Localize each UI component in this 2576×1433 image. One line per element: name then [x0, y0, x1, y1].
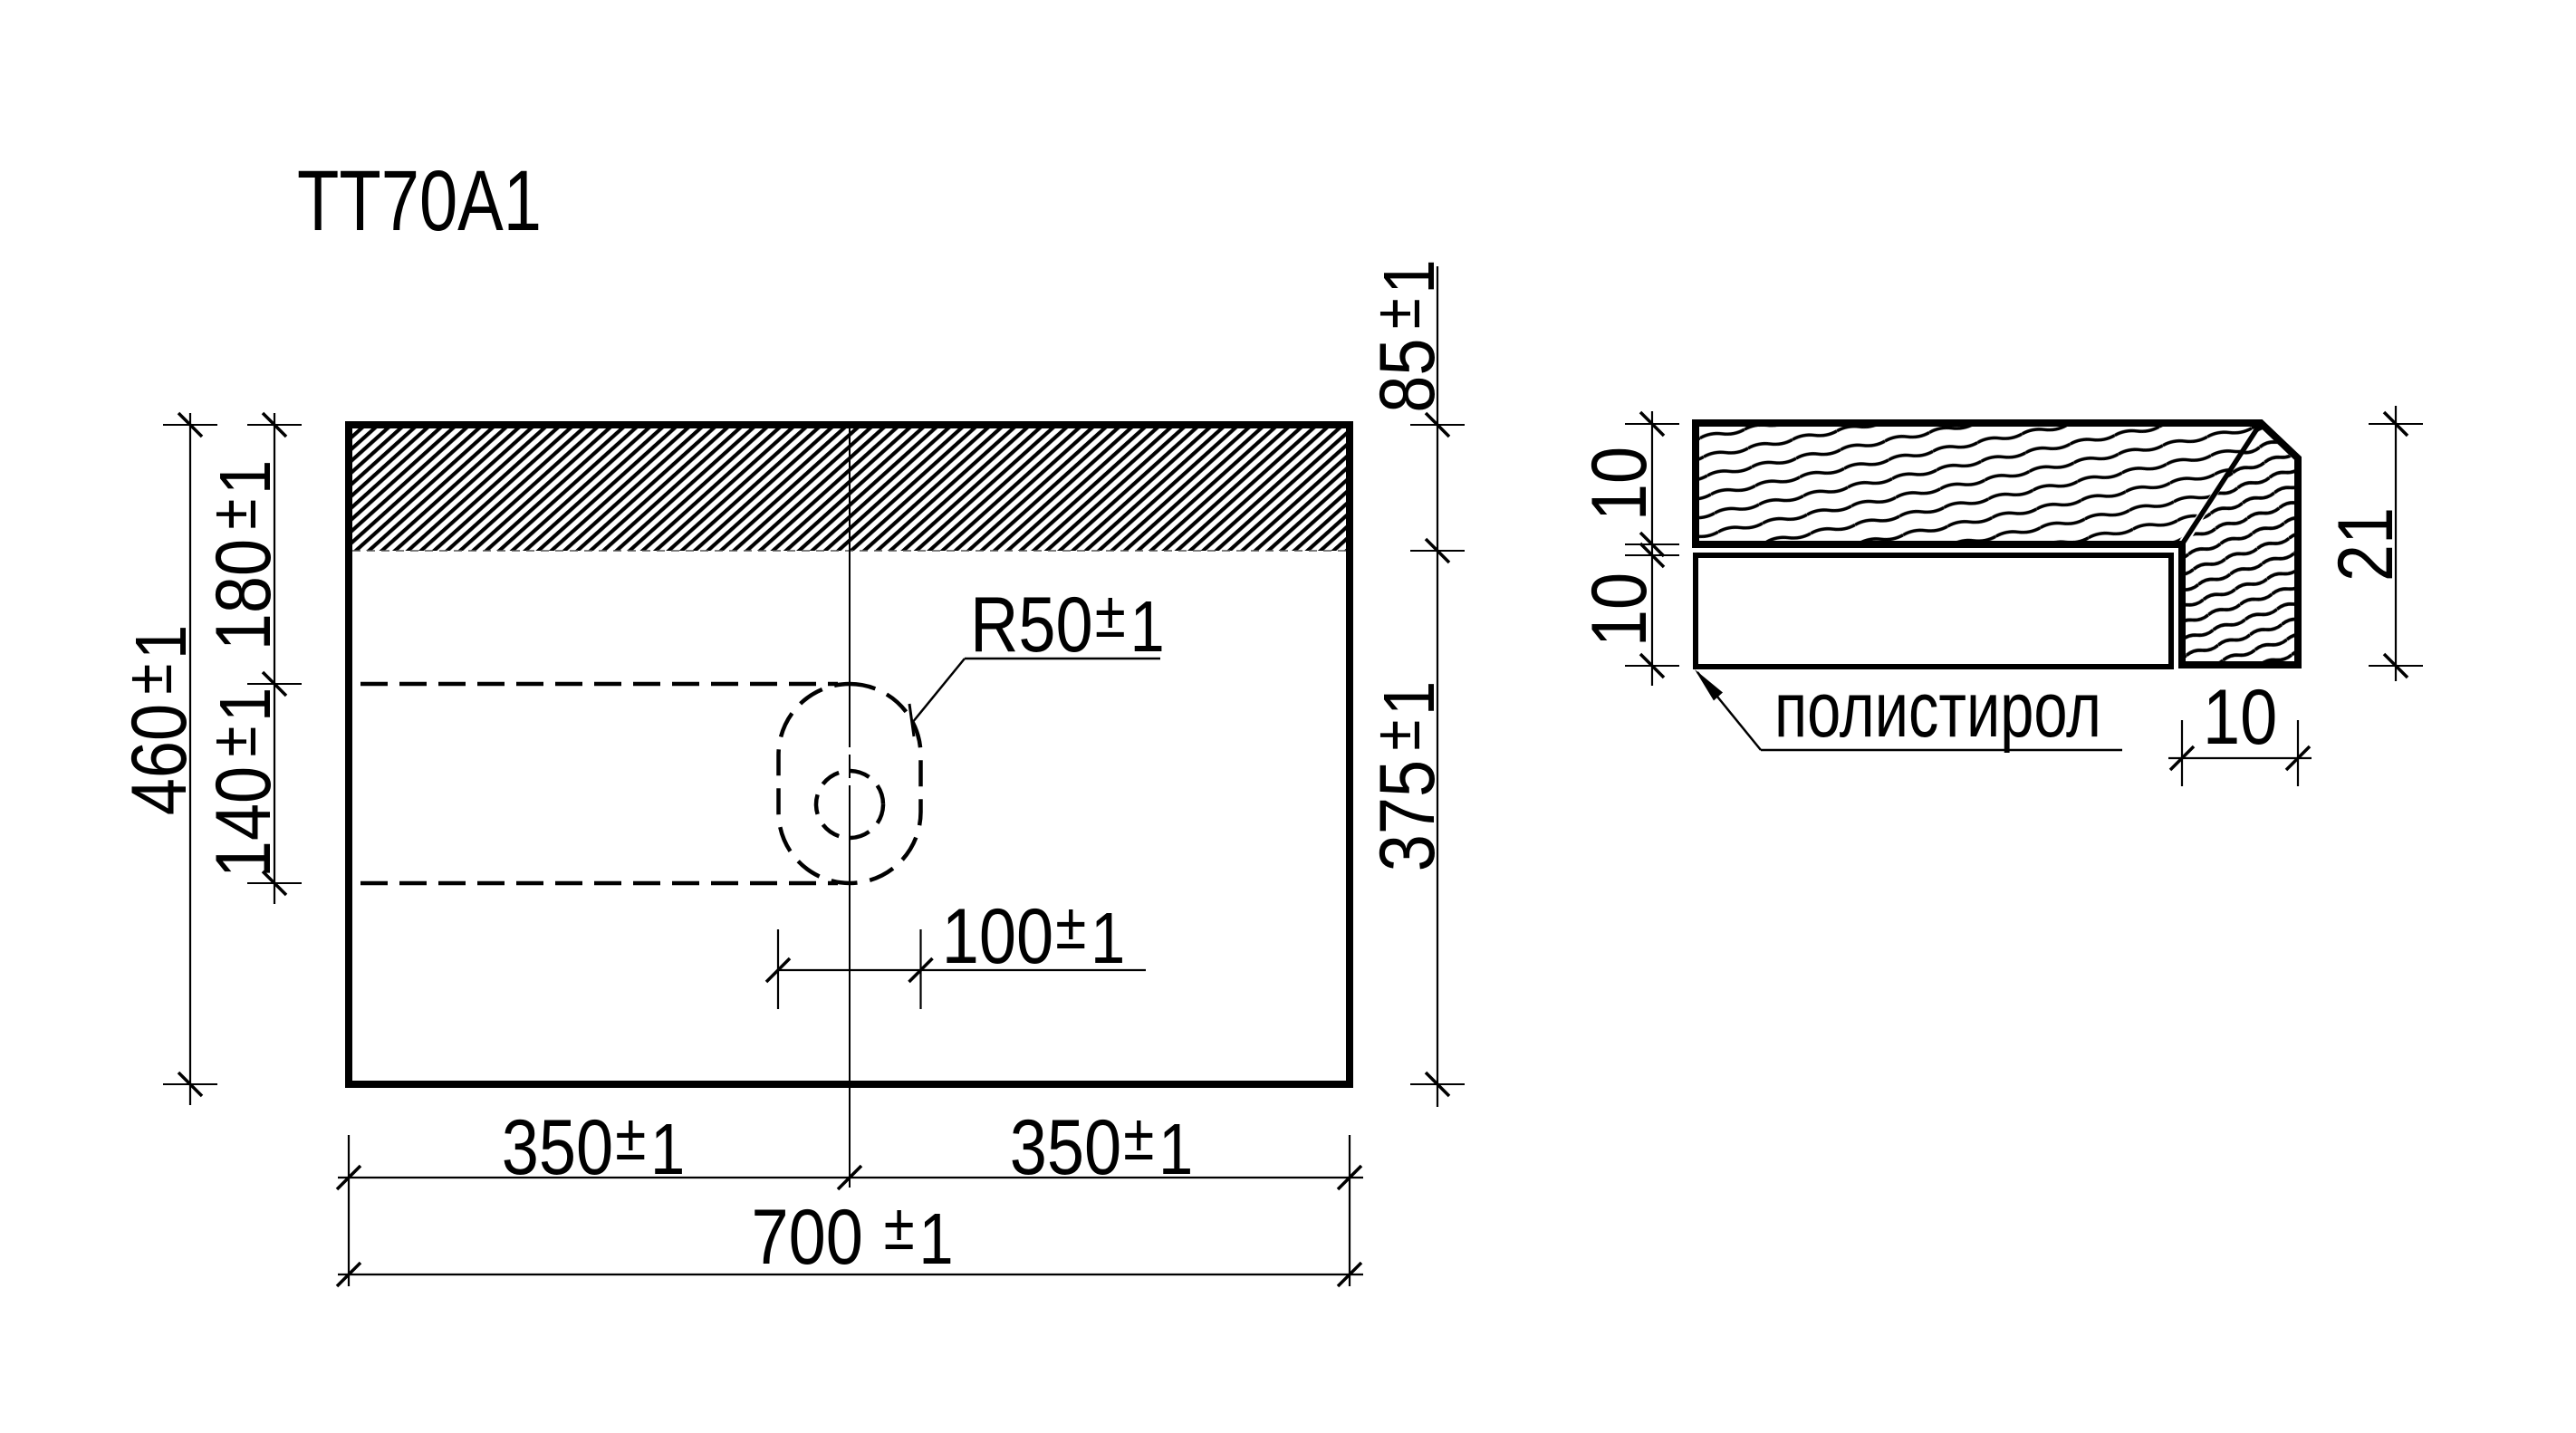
- svg-text:TT70A1: TT70A1: [297, 153, 542, 249]
- svg-text:350±1: 350±1: [1010, 1101, 1193, 1191]
- svg-text:100±1: 100±1: [942, 890, 1125, 980]
- svg-text:350±1: 350±1: [502, 1101, 685, 1191]
- svg-text:10: 10: [1575, 572, 1663, 647]
- svg-text:R50±1: R50±1: [970, 579, 1165, 668]
- svg-text:375±1: 375±1: [1361, 681, 1451, 872]
- svg-text:180±1: 180±1: [197, 460, 287, 651]
- svg-text:140±1: 140±1: [197, 688, 287, 879]
- svg-text:полистирол: полистирол: [1774, 667, 2101, 754]
- svg-text:460±1: 460±1: [113, 625, 203, 816]
- svg-text:21: 21: [2321, 507, 2409, 582]
- svg-text:10: 10: [2203, 673, 2277, 761]
- svg-text:10: 10: [1575, 447, 1663, 521]
- svg-text:700±1: 700±1: [752, 1191, 954, 1281]
